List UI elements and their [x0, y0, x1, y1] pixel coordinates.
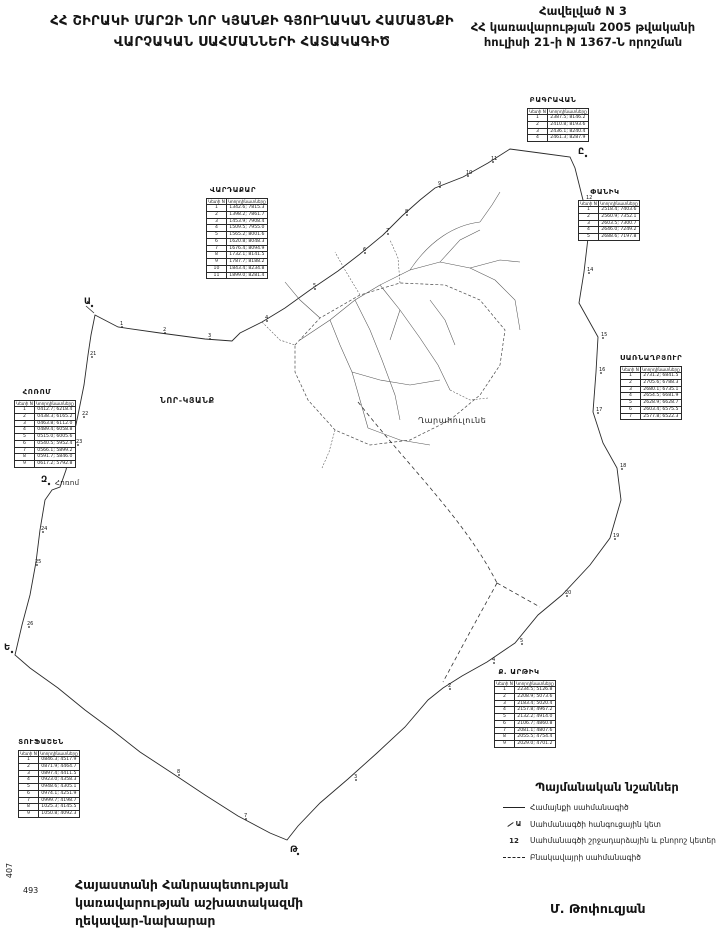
table-row: 52628.9; 6628.7 [621, 400, 682, 407]
table-cell: 1342.6; 7815.3 [226, 205, 267, 212]
table-row: 111899.0; 8281.4 [207, 272, 268, 279]
table-cell: 1 [15, 407, 35, 414]
boundary-point-number: 4 [492, 657, 495, 663]
table-cell: 8 [495, 734, 515, 741]
table-cell: 2055.5; 4754.4 [514, 734, 555, 741]
table-cell: 2646.0; 7249.2 [598, 227, 639, 234]
table-cell: 1565.2; 8001.6 [226, 232, 267, 239]
table-title: ՎԱՐԴԱՔԱՐ [206, 186, 260, 194]
dashed-line-symbol [498, 853, 530, 861]
table-row: 82055.5; 4754.4 [495, 734, 556, 741]
table-row: 42646.0; 7249.2 [579, 227, 640, 234]
table-cell: 10 [207, 265, 227, 272]
table-cell: 2132.2; 4914.0 [514, 714, 555, 721]
boundary-point-number: 10 [466, 170, 472, 176]
table-cell: 0463.8; 6112.0 [34, 420, 75, 427]
table-row: 10846.3; 4517.9 [19, 757, 80, 764]
table-cell: 5 [15, 434, 35, 441]
boundary-point-number: 3 [354, 774, 357, 780]
signatory-line1: Հայաստանի Հանրապետության [75, 876, 303, 894]
table-row: 12518.4; 7403.6 [579, 207, 640, 214]
boundary-node-letter: Զ [41, 475, 47, 485]
table-row: 10412.7; 6218.4 [15, 407, 76, 414]
corner-number-vertical: 407 [5, 863, 14, 878]
table-cell: 1 [495, 687, 515, 694]
table-row: 62106.7; 4860.8 [495, 720, 556, 727]
table-cell: 3 [621, 386, 641, 393]
table-cell: 2 [15, 413, 35, 420]
table-cell: 2628.9; 6628.7 [640, 400, 681, 407]
table-cell: 0515.0; 6005.6 [34, 434, 75, 441]
table-row: 12234.5; 5126.8 [495, 687, 556, 694]
table-cell: 1025.3; 4145.5 [38, 804, 79, 811]
table-cell: 11 [207, 272, 227, 279]
table-cell: 4 [207, 225, 227, 232]
table-cell: 7 [207, 245, 227, 252]
boundary-node-letter: Ը [578, 147, 584, 157]
boundary-point-number: 26 [27, 621, 33, 627]
table-cell: 0897.4; 4411.5 [38, 770, 79, 777]
table-row: 91787.7; 8188.2 [207, 259, 268, 266]
boundary-point-number: 2 [448, 683, 451, 689]
corner-number: 493 [23, 886, 38, 895]
table-row: 92029.0; 4701.2 [495, 741, 556, 748]
table-cell: 9 [19, 811, 39, 818]
table-cell: 6 [207, 238, 227, 245]
table-row: 101843.4; 8234.8 [207, 265, 268, 272]
table-cell: 7 [495, 727, 515, 734]
table-row: 70999.7; 4198.7 [19, 797, 80, 804]
table-cell: 1 [19, 757, 39, 764]
table-row: 70566.1; 5899.2 [15, 447, 76, 454]
legend-item-settlement-boundary: Բնակավայրի սահմանագիծ [498, 853, 716, 862]
boundary-point-number: 7 [386, 228, 389, 234]
coordinates-table: Կետի NԿոորդինատները10846.3; 4517.920871.… [18, 750, 80, 818]
table-header-cell: Կոորդինատները [226, 199, 267, 205]
table-header-cell: Կետի N [15, 401, 35, 407]
junction-point-symbol: Ա [498, 820, 530, 828]
table-cell: 2436.1; 8240.4 [547, 128, 588, 135]
table-cell: 3 [15, 420, 35, 427]
table-row: 72081.1; 4807.6 [495, 727, 556, 734]
table-row: 42157.8; 4967.2 [495, 707, 556, 714]
table-cell: 5 [621, 400, 641, 407]
table-row: 81732.1; 8141.5 [207, 252, 268, 259]
table-row: 32603.5; 7300.7 [579, 220, 640, 227]
table-row: 50948.6; 4305.1 [19, 784, 80, 791]
table-row: 22410.8; 8193.6 [528, 121, 589, 128]
coordinates-table: Կետի NԿոորդինատները12518.4; 7403.622560.… [578, 200, 640, 241]
table-row: 12387.5; 8146.2 [528, 115, 589, 122]
table-cell: 4 [19, 777, 39, 784]
boundary-point-dot [11, 651, 13, 653]
table-cell: 0617.2; 5792.8 [34, 461, 75, 468]
table-cell: 1 [528, 115, 548, 122]
table-row: 81025.3; 4145.5 [19, 804, 80, 811]
annex-reference: Հավելված N 3 ՀՀ կառավարության 2005 թվակա… [452, 4, 714, 51]
table-cell: 2654.5; 6681.9 [640, 393, 681, 400]
table-cell: 4 [621, 393, 641, 400]
boundary-point-number: 2 [163, 327, 166, 333]
table-title: ԲԱԳՐԱՎԱՆ [527, 96, 579, 104]
table-cell: 4 [15, 427, 35, 434]
table-cell: 2208.9; 5073.6 [514, 693, 555, 700]
table-cell: 9 [495, 741, 515, 748]
boundary-point-number: 17 [596, 407, 602, 413]
table-cell: 7 [15, 447, 35, 454]
table-row: 41509.5; 7955.0 [207, 225, 268, 232]
table-cell: 0999.7; 4198.7 [38, 797, 79, 804]
table-row: 72577.8; 6522.3 [621, 413, 682, 420]
boundary-point-number: 19 [613, 533, 619, 539]
table-title: Ք. ԱՐԹԻԿ [494, 668, 544, 676]
table-header-cell: Կոորդինատները [38, 751, 79, 757]
table-row: 42461.3; 8287.9 [528, 135, 589, 142]
annex-line2: ՀՀ կառավարության 2005 թվականի [452, 20, 714, 36]
coordinates-table: Կետի NԿոորդինատները12731.2; 6841.522705.… [620, 366, 682, 420]
table-cell: 2518.4; 7403.6 [598, 207, 639, 214]
table-cell: 2029.0; 4701.2 [514, 741, 555, 748]
table-cell: 6 [19, 790, 39, 797]
legend-item-turning-points: 12 Սահմանագծի շրջադարձային և բնորոշ կետե… [498, 836, 716, 845]
table-cell: 1 [621, 373, 641, 380]
solid-line-symbol [498, 804, 530, 812]
table-cell: 2 [621, 379, 641, 386]
table-cell: 1 [579, 207, 599, 214]
table-header-cell: Կետի N [528, 109, 548, 115]
table-cell: 0566.1; 5899.2 [34, 447, 75, 454]
signatory-title-block: Հայաստանի Հանրապետության կառավարության ա… [75, 876, 303, 930]
boundary-node-letter: Ե [4, 643, 10, 653]
table-title: ՀՈՌՈՄ [14, 388, 60, 396]
table-row: 32436.1; 8240.4 [528, 128, 589, 135]
coords-table-tufashen: ՏՈՒՖԱՇԵՆԿետի NԿոորդինատները10846.3; 4517… [18, 738, 64, 818]
boundary-point-number: 23 [76, 439, 82, 445]
table-row: 50515.0; 6005.6 [15, 434, 76, 441]
table-cell: 5 [495, 714, 515, 721]
table-row: 22560.9; 7352.1 [579, 213, 640, 220]
table-cell: 2705.6; 6788.3 [640, 379, 681, 386]
boundary-point-number: 4 [265, 315, 268, 321]
table-cell: 0412.7; 6218.4 [34, 407, 75, 414]
table-cell: 1899.0; 8281.4 [226, 272, 267, 279]
table-cell: 0871.9; 4464.7 [38, 763, 79, 770]
map-label: Ղարահուլունե [418, 416, 486, 425]
table-row: 60540.5; 5952.4 [15, 440, 76, 447]
table-title: ՏՈՒՖԱՇԵՆ [18, 738, 64, 746]
boundary-node-letter: Թ [290, 845, 298, 855]
table-cell: 3 [207, 218, 227, 225]
coordinates-table: Կետի NԿոորդինատները11342.6; 7815.321398.… [206, 198, 268, 279]
table-cell: 2577.8; 6522.3 [640, 413, 681, 420]
table-row: 31453.9; 7908.4 [207, 218, 268, 225]
boundary-point-number: 15 [601, 332, 607, 338]
table-cell: 4 [579, 227, 599, 234]
table-cell: 2688.6; 7197.8 [598, 234, 639, 241]
table-header-cell: Կետի N [19, 751, 39, 757]
table-cell: 1050.8; 4092.3 [38, 811, 79, 818]
table-cell: 2 [579, 213, 599, 220]
table-row: 52132.2; 4914.0 [495, 714, 556, 721]
scanned-map-page: { "header": { "title_line1": "ՀՀ ՇԻՐԱԿԻ … [0, 0, 716, 932]
table-row: 30463.8; 6112.0 [15, 420, 76, 427]
table-row: 12731.2; 6841.5 [621, 373, 682, 380]
coordinates-table: Կետի NԿոորդինատները12387.5; 8146.222410.… [527, 108, 589, 142]
table-cell: 0948.6; 4305.1 [38, 784, 79, 791]
table-row: 32183.4; 5020.4 [495, 700, 556, 707]
table-row: 20871.9; 4464.7 [19, 763, 80, 770]
internal-divider-line [358, 402, 540, 682]
table-cell: 0846.3; 4517.9 [38, 757, 79, 764]
table-row: 42654.5; 6681.9 [621, 393, 682, 400]
map-label: ՆՈՐ-ԿՅԱՆՔ [160, 396, 215, 405]
table-cell: 2461.3; 8287.9 [547, 135, 588, 142]
table-row: 80591.7; 5846.0 [15, 454, 76, 461]
table-cell: 2387.5; 8146.2 [547, 115, 588, 122]
table-row: 60974.1; 4251.9 [19, 790, 80, 797]
boundary-point-number: 3 [208, 333, 211, 339]
boundary-point-number: 8 [405, 209, 408, 215]
node-pointer-line [86, 306, 94, 313]
document-title-line2: ՎԱՐՉԱԿԱՆ ՍԱՀՄԱՆՆԵՐԻ ՀԱՏԱԿԱԳԻԾ [36, 33, 468, 54]
table-header-cell: Կոորդինատները [514, 681, 555, 687]
legend-item-community-boundary: Համայնքի սահմանագիծ [498, 803, 716, 812]
table-cell: 2 [495, 693, 515, 700]
table-row: 90617.2; 5792.8 [15, 461, 76, 468]
turning-point-symbol: 12 [498, 837, 530, 845]
boundary-point-dot [585, 155, 587, 157]
road-network [262, 192, 520, 468]
table-cell: 1620.8; 8048.3 [226, 238, 267, 245]
table-cell: 6 [621, 406, 641, 413]
table-cell: 6 [495, 720, 515, 727]
coords-table-vardakar: ՎԱՐԴԱՔԱՐԿետի NԿոորդինատները11342.6; 7815… [206, 186, 260, 279]
boundary-point-number: 8 [177, 769, 180, 775]
table-cell: 2 [528, 121, 548, 128]
table-cell: 5 [579, 234, 599, 241]
table-cell: 7 [19, 797, 39, 804]
table-cell: 2603.5; 7300.7 [598, 220, 639, 227]
boundary-point-number: 22 [82, 411, 88, 417]
boundary-point-number: 1 [120, 321, 123, 327]
annex-line1: Հավելված N 3 [452, 4, 714, 20]
boundary-point-number: 5 [520, 638, 523, 644]
table-cell: 0540.5; 5952.4 [34, 440, 75, 447]
signatory-line3: ղեկավար-նախարար [75, 912, 303, 930]
document-title: ՀՀ ՇԻՐԱԿԻ ՄԱՐԶԻ ՆՈՐ ԿՅԱՆՔԻ ԳՅՈՒՂԱԿԱՆ ՀԱՄ… [36, 12, 468, 54]
table-cell: 5 [207, 232, 227, 239]
table-row: 40923.0; 4358.3 [19, 777, 80, 784]
table-header-cell: Կոորդինատները [640, 367, 681, 373]
table-header-cell: Կետի N [579, 201, 599, 207]
table-cell: 4 [528, 135, 548, 142]
table-cell: 2 [207, 211, 227, 218]
table-row: 22208.9; 5073.6 [495, 693, 556, 700]
table-cell: 0489.4; 6058.8 [34, 427, 75, 434]
table-title: ՍԱՌՆԱՂԲՅՈՒՐ [620, 354, 668, 362]
coords-table-bagravan: ԲԱԳՐԱՎԱՆԿետի NԿոորդինատները12387.5; 8146… [527, 96, 579, 142]
table-cell: 1398.2; 7861.7 [226, 211, 267, 218]
annex-line3: հուլիսի 21-ի N 1367-Ն որոշման [452, 35, 714, 51]
coords-table-panik: ՓԱՆԻԿԿետի NԿոորդինատները12518.4; 7403.62… [578, 188, 632, 241]
boundary-point-number: 9 [438, 181, 441, 187]
table-cell: 2234.5; 5126.8 [514, 687, 555, 694]
table-row: 30897.4; 4411.5 [19, 770, 80, 777]
boundary-point-number: 21 [90, 351, 96, 357]
table-cell: 0438.3; 6165.2 [34, 413, 75, 420]
legend: Պայմանական նշաններ Համայնքի սահմանագիծ Ա… [498, 780, 716, 869]
coordinates-table: Կետի NԿոորդինատները12234.5; 5126.822208.… [494, 680, 556, 748]
table-row: 22705.6; 6788.3 [621, 379, 682, 386]
table-cell: 6 [15, 440, 35, 447]
table-header-cell: Կետի N [207, 199, 227, 205]
table-cell: 2183.4; 5020.4 [514, 700, 555, 707]
table-row: 71676.4; 8094.9 [207, 245, 268, 252]
boundary-point-dot [91, 305, 93, 307]
coords-table-artik: Ք. ԱՐԹԻԿԿետի NԿոորդինատները12234.5; 5126… [494, 668, 544, 748]
map-label: Հոռոմ [55, 479, 79, 487]
table-row: 51565.2; 8001.6 [207, 232, 268, 239]
boundary-node-letter: Ա [84, 297, 91, 307]
table-cell: 3 [528, 128, 548, 135]
table-cell: 1843.4; 8234.8 [226, 265, 267, 272]
table-row: 20438.3; 6165.2 [15, 413, 76, 420]
table-cell: 8 [207, 252, 227, 259]
table-cell: 0591.7; 5846.0 [34, 454, 75, 461]
table-cell: 1787.7; 8188.2 [226, 259, 267, 266]
table-header-cell: Կոորդինատները [598, 201, 639, 207]
table-header-cell: Կոորդինատները [547, 109, 588, 115]
boundary-point-number: 11 [491, 156, 497, 162]
table-header-cell: Կոորդինատները [34, 401, 75, 407]
legend-item-junction-point: Ա Սահմանագծի հանգուցային կետ [498, 820, 716, 829]
table-row: 32680.1; 6735.1 [621, 386, 682, 393]
table-cell: 2560.9; 7352.1 [598, 213, 639, 220]
document-title-line1: ՀՀ ՇԻՐԱԿԻ ՄԱՐԶԻ ՆՈՐ ԿՅԱՆՔԻ ԳՅՈՒՂԱԿԱՆ ՀԱՄ… [36, 12, 468, 33]
table-title: ՓԱՆԻԿ [578, 188, 632, 196]
boundary-point-number: 25 [35, 559, 41, 565]
table-cell: 9 [15, 461, 35, 468]
table-cell: 2731.2; 6841.5 [640, 373, 681, 380]
table-cell: 2106.7; 4860.8 [514, 720, 555, 727]
table-cell: 2081.1; 4807.6 [514, 727, 555, 734]
boundary-points-layer: 1234567891011121314151617181920212223242… [4, 147, 626, 855]
signatory-line2: կառավարության աշխատակազմի [75, 894, 303, 912]
table-cell: 2 [19, 763, 39, 770]
table-cell: 2410.8; 8193.6 [547, 121, 588, 128]
boundary-point-number: 5 [313, 283, 316, 289]
table-cell: 2157.8; 4967.2 [514, 707, 555, 714]
table-cell: 5 [19, 784, 39, 791]
table-cell: 3 [19, 770, 39, 777]
table-header-cell: Կետի N [621, 367, 641, 373]
table-cell: 2603.4; 6575.5 [640, 406, 681, 413]
signature-name: Մ. Թոփուզյան [550, 901, 646, 916]
boundary-point-number: 20 [565, 590, 571, 596]
table-cell: 8 [15, 454, 35, 461]
table-cell: 1732.1; 8141.5 [226, 252, 267, 259]
table-row: 11342.6; 7815.3 [207, 205, 268, 212]
table-cell: 0974.1; 4251.9 [38, 790, 79, 797]
table-cell: 1676.4; 8094.9 [226, 245, 267, 252]
coordinates-table: Կետի NԿոորդինատները10412.7; 6218.420438.… [14, 400, 76, 468]
table-cell: 8 [19, 804, 39, 811]
boundary-point-dot [48, 483, 50, 485]
table-cell: 2680.1; 6735.1 [640, 386, 681, 393]
table-header-cell: Կետի N [495, 681, 515, 687]
table-cell: 0923.0; 4358.3 [38, 777, 79, 784]
table-cell: 4 [495, 707, 515, 714]
coords-table-horom: ՀՈՌՈՄԿետի NԿոորդինատները10412.7; 6218.42… [14, 388, 60, 468]
table-cell: 9 [207, 259, 227, 266]
table-row: 21398.2; 7861.7 [207, 211, 268, 218]
coords-table-sarnaghbyur: ՍԱՌՆԱՂԲՅՈՒՐԿետի NԿոորդինատները12731.2; 6… [620, 354, 668, 420]
legend-title: Պայմանական նշաններ [498, 780, 716, 794]
boundary-point-number: 24 [41, 526, 47, 532]
table-cell: 7 [621, 413, 641, 420]
table-cell: 1 [207, 205, 227, 212]
boundary-point-number: 18 [620, 463, 626, 469]
table-row: 62603.4; 6575.5 [621, 406, 682, 413]
boundary-point-number: 14 [587, 267, 593, 273]
table-cell: 1453.9; 7908.4 [226, 218, 267, 225]
table-cell: 3 [579, 220, 599, 227]
table-cell: 3 [495, 700, 515, 707]
table-row: 61620.8; 8048.3 [207, 238, 268, 245]
table-row: 91050.8; 4092.3 [19, 811, 80, 818]
table-row: 52688.6; 7197.8 [579, 234, 640, 241]
table-row: 40489.4; 6058.8 [15, 427, 76, 434]
boundary-point-number: 16 [599, 367, 605, 373]
boundary-point-number: 7 [244, 813, 247, 819]
boundary-point-number: 6 [363, 247, 366, 253]
table-cell: 1509.5; 7955.0 [226, 225, 267, 232]
